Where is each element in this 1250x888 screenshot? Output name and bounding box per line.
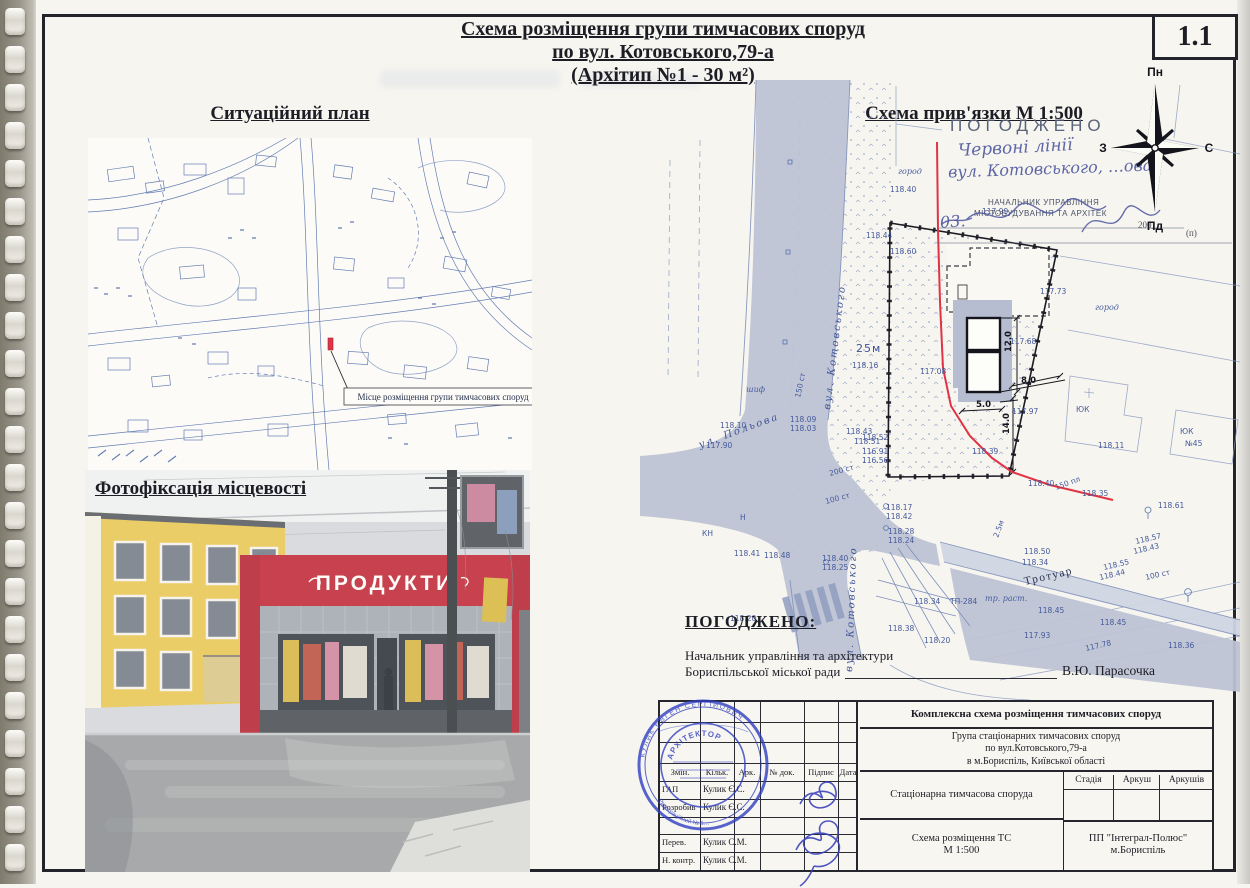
plan-label: №45 xyxy=(1185,439,1203,448)
plan-label: 118.41 xyxy=(734,549,760,558)
plan-label: 12.0 xyxy=(1004,331,1014,352)
plan-label: 118.25 xyxy=(822,563,848,572)
binding-ring xyxy=(5,730,25,757)
table-signature-scribbles xyxy=(770,758,900,888)
binding-ring xyxy=(5,8,25,35)
plan-label: 118.11 xyxy=(1098,441,1124,450)
fog-overlay xyxy=(85,470,530,872)
title-line-1: Схема розміщення групи тимчасових споруд xyxy=(428,18,898,41)
binding-ring xyxy=(5,236,25,263)
stage-col-header: Аркуш xyxy=(1113,775,1160,789)
plan-label: 116.91 xyxy=(862,447,888,456)
plan-label: тр. раст. xyxy=(985,594,1027,603)
binding-ring xyxy=(5,84,25,111)
doc-title-cell: Комплексна схема розміщення тимчасових с… xyxy=(860,702,1212,729)
binding-ring xyxy=(5,692,25,719)
compass-rose: Пн Пд З С xyxy=(1093,62,1223,234)
plan-label: ЮК xyxy=(1180,427,1194,436)
plan-label: 118.03 xyxy=(790,424,816,433)
stage-col-header: Аркушів xyxy=(1159,775,1213,789)
plan-label: 118.48 xyxy=(764,551,790,560)
svg-text:КУЛИК ЄВГЕН СЕРГІЙОВИЧ: КУЛИК ЄВГЕН СЕРГІЙОВИЧ xyxy=(639,700,744,758)
stage-col-header: Стадія xyxy=(1064,775,1113,785)
binding-ring xyxy=(5,426,25,453)
site-location-marker xyxy=(328,338,333,350)
main-title: Схема розміщення групи тимчасових споруд… xyxy=(428,18,898,87)
plan-label: 118.50 xyxy=(1024,547,1050,556)
compass-star xyxy=(1111,84,1199,212)
binding-ring xyxy=(5,274,25,301)
signatory-name: В.Ю. Парасочка xyxy=(1062,663,1155,679)
sheet-number-box: 1.1 xyxy=(1152,14,1238,60)
compass-west-label: З xyxy=(1099,141,1107,155)
binding-ring xyxy=(5,616,25,643)
round-blue-stamp: КУЛИК ЄВГЕН СЕРГІЙОВИЧ АРХІТЕКТОР Реєстр… xyxy=(628,692,783,842)
binding-ring xyxy=(5,578,25,605)
plan-label: 118.35 xyxy=(1082,489,1108,498)
title-block-right: Комплексна схема розміщення тимчасових с… xyxy=(860,702,1212,870)
binding-ring xyxy=(5,122,25,149)
plan-label: 25м xyxy=(856,342,881,355)
temporary-structure-2 xyxy=(967,352,1000,392)
object-line-1: Група стаціонарних тимчасових споруд xyxy=(952,731,1120,744)
plan-label: город xyxy=(1095,303,1119,312)
binding-ring xyxy=(5,540,25,567)
plan-label: 118.34 xyxy=(1022,558,1048,567)
plan-label: 14.0 xyxy=(1002,413,1012,434)
stage-empty-cells xyxy=(1064,789,1212,822)
plan-label: 118.10 xyxy=(720,421,746,430)
plan-label: ТП-284 xyxy=(949,597,977,606)
plan-label: 117.90 xyxy=(706,441,732,450)
plan-label: 117.97 xyxy=(1012,407,1038,416)
plan-label: 116.56 xyxy=(862,456,888,465)
approval-heading: ПОГОДЖЕНО: xyxy=(685,612,1185,632)
sheet-name-line-1: Схема розміщення ТС xyxy=(912,833,1011,846)
binding-ring xyxy=(5,388,25,415)
situational-plan-heading: Ситуаційний план xyxy=(110,103,470,125)
object-line-2: по вул.Котовського,79-а xyxy=(985,743,1087,756)
photo-heading: Фотофіксація місцевості xyxy=(95,478,306,500)
table-row-name: Кулик С.М. xyxy=(703,856,759,866)
scanned-sheet: { "page": { "sheet_number": "1.1" }, "ti… xyxy=(0,0,1250,884)
plan-label: 118.44 xyxy=(866,231,892,240)
site-photo-image: ПРОДУКТИ xyxy=(85,470,530,872)
plan-label: 118.61 xyxy=(1158,501,1184,510)
binding-ring xyxy=(5,350,25,377)
plan-label: 118.09 xyxy=(790,415,816,424)
plan-label: 2.5м xyxy=(991,519,1005,539)
company-line-1: ПП "Інтеграл-Полюс" xyxy=(1089,833,1187,846)
plan-label: 118.16 xyxy=(852,361,878,370)
sheet-name-line-2: М 1:500 xyxy=(944,845,980,858)
stamp-name-arc: КУЛИК ЄВГЕН СЕРГІЙОВИЧ xyxy=(639,700,744,758)
binding-ring xyxy=(5,502,25,529)
plan-label: 118.60 xyxy=(890,247,916,256)
marker-label: Місце розміщення групи тимчасових споруд xyxy=(357,392,528,402)
temporary-structure-1 xyxy=(967,318,1000,350)
binding-ring xyxy=(5,198,25,225)
plan-label: 117.73 xyxy=(1040,287,1066,296)
plan-label: 118.40 xyxy=(822,554,848,563)
situational-map-image: Місце розміщення групи тимчасових споруд xyxy=(88,138,532,470)
plan-label: 118.40 xyxy=(890,185,916,194)
plan-label: КН xyxy=(702,529,713,538)
plan-label: 8.0 xyxy=(1021,376,1036,386)
plan-label: 118.51 xyxy=(854,437,880,446)
plan-label: 118.39 xyxy=(972,447,998,456)
plan-label: 5.0 xyxy=(976,400,991,410)
object-line-3: в м.Бориспіль, Київської області xyxy=(967,756,1105,769)
compass-east-label: С xyxy=(1205,141,1214,155)
plan-label: 118.24 xyxy=(888,536,914,545)
plan-label: Н xyxy=(740,513,746,522)
binding-ring xyxy=(5,46,25,73)
plan-label: 118.17 xyxy=(886,503,912,512)
compass-north-label: Пн xyxy=(1147,65,1163,79)
plan-label: 118.42 xyxy=(886,512,912,521)
binding-ring xyxy=(5,806,25,833)
plan-label: 100 ст xyxy=(1144,567,1171,582)
plan-label: 118.34 xyxy=(914,597,940,606)
plan-label: шиф xyxy=(746,385,765,394)
stage-header-row: СтадіяАркушАркушів xyxy=(1064,772,1212,790)
sheet-number: 1.1 xyxy=(1178,21,1213,52)
binding-ring xyxy=(5,768,25,795)
plan-label: 118.40 xyxy=(1028,479,1054,488)
spiral-binding-strip xyxy=(0,0,36,884)
plan-label: 118.28 xyxy=(888,527,914,536)
table-row-role: Н. контр. xyxy=(662,856,699,865)
compass-south-label: Пд xyxy=(1147,219,1164,233)
binding-ring xyxy=(5,464,25,491)
signature-line xyxy=(845,662,1057,679)
company-line-2: м.Бориспіль xyxy=(1111,845,1166,858)
plan-label: ЮК xyxy=(1076,405,1090,414)
binding-ring xyxy=(5,160,25,187)
title-line-2: по вул. Котовського,79-а xyxy=(428,41,898,64)
binding-ring xyxy=(5,312,25,339)
binding-ring xyxy=(5,844,25,871)
plan-label: город xyxy=(898,167,922,176)
binding-ring xyxy=(5,654,25,681)
plan-label: 118.44 xyxy=(1098,567,1126,582)
plan-label: 117.08 xyxy=(920,367,946,376)
